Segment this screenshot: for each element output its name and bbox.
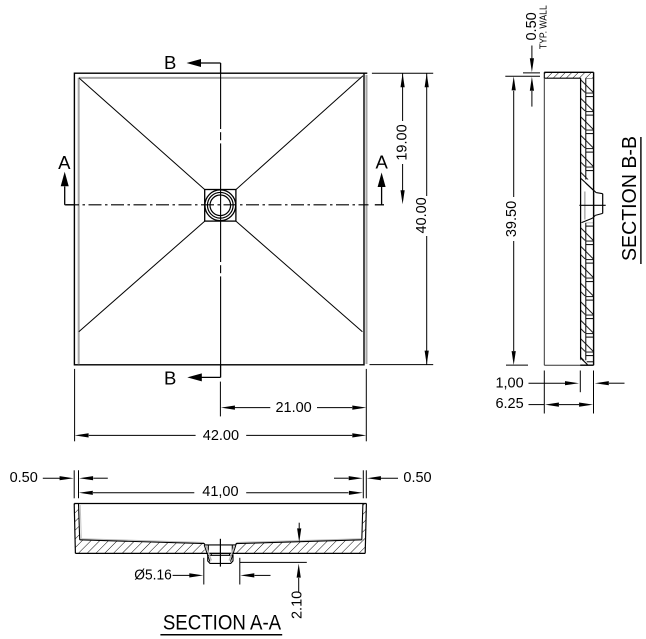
svg-text:41,00: 41,00 [202, 484, 238, 500]
svg-text:40.00: 40.00 [414, 197, 430, 233]
svg-text:1,00: 1,00 [495, 375, 523, 391]
svg-text:TYP. WALL: TYP. WALL [537, 5, 549, 49]
svg-text:B: B [164, 52, 176, 73]
svg-text:21.00: 21.00 [275, 400, 311, 416]
svg-text:A: A [376, 152, 389, 173]
svg-text:SECTION A-A: SECTION A-A [163, 612, 281, 635]
svg-text:42.00: 42.00 [203, 428, 239, 444]
svg-text:6.25: 6.25 [495, 396, 523, 412]
svg-text:2.10: 2.10 [290, 591, 306, 619]
svg-text:SECTION B-B: SECTION B-B [619, 136, 641, 261]
svg-text:B: B [164, 367, 176, 388]
svg-text:Ø5.16: Ø5.16 [134, 568, 172, 584]
svg-text:19.00: 19.00 [394, 124, 410, 160]
svg-text:39.50: 39.50 [504, 201, 520, 237]
svg-text:0.50: 0.50 [403, 470, 431, 486]
svg-text:A: A [58, 152, 71, 173]
svg-text:0.50: 0.50 [10, 470, 38, 486]
